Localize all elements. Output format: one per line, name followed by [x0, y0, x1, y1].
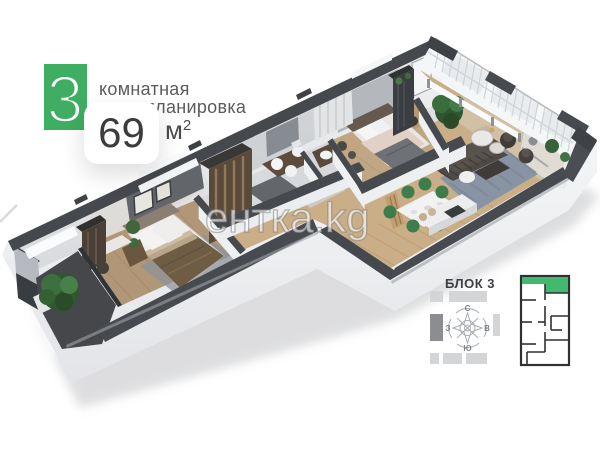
svg-text:3: 3	[47, 64, 84, 130]
svg-text:Ю: Ю	[463, 344, 471, 353]
svg-text:В: В	[484, 324, 490, 333]
svg-text:ентка.kg: ентка.kg	[205, 194, 369, 241]
svg-text:С: С	[465, 304, 471, 313]
svg-text:З: З	[445, 324, 450, 333]
